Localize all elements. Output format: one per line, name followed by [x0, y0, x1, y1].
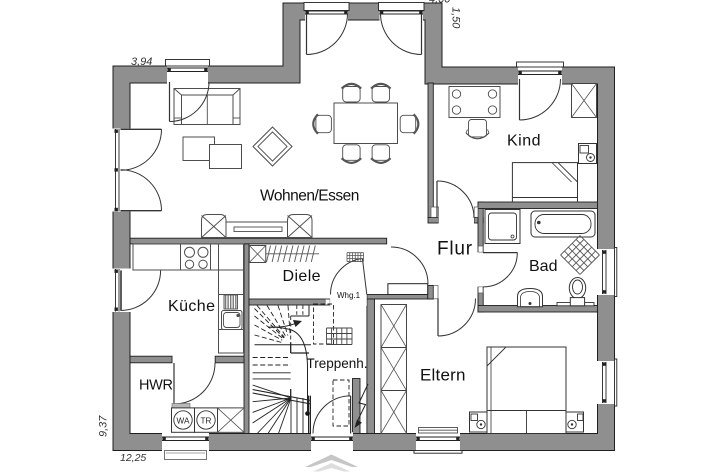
svg-text:Küche: Küche: [168, 298, 215, 315]
svg-text:4,00: 4,00: [429, 0, 451, 6]
svg-text:Flur: Flur: [437, 239, 473, 260]
svg-text:Bad: Bad: [529, 258, 557, 275]
svg-text:HWR: HWR: [139, 378, 173, 394]
svg-text:1,50: 1,50: [450, 7, 462, 29]
svg-text:Whg.1: Whg.1: [337, 291, 361, 300]
svg-text:Kind: Kind: [507, 133, 541, 150]
svg-text:Diele: Diele: [283, 268, 321, 285]
svg-text:Eltern: Eltern: [420, 366, 466, 385]
svg-text:WA: WA: [177, 416, 190, 425]
svg-text:9,37: 9,37: [98, 415, 110, 437]
svg-text:3,94: 3,94: [131, 56, 152, 68]
svg-text:12,25: 12,25: [120, 452, 146, 464]
svg-text:TR: TR: [201, 416, 212, 425]
svg-text:Treppenh.: Treppenh.: [307, 356, 368, 371]
svg-text:Wohnen/Essen: Wohnen/Essen: [260, 188, 359, 205]
